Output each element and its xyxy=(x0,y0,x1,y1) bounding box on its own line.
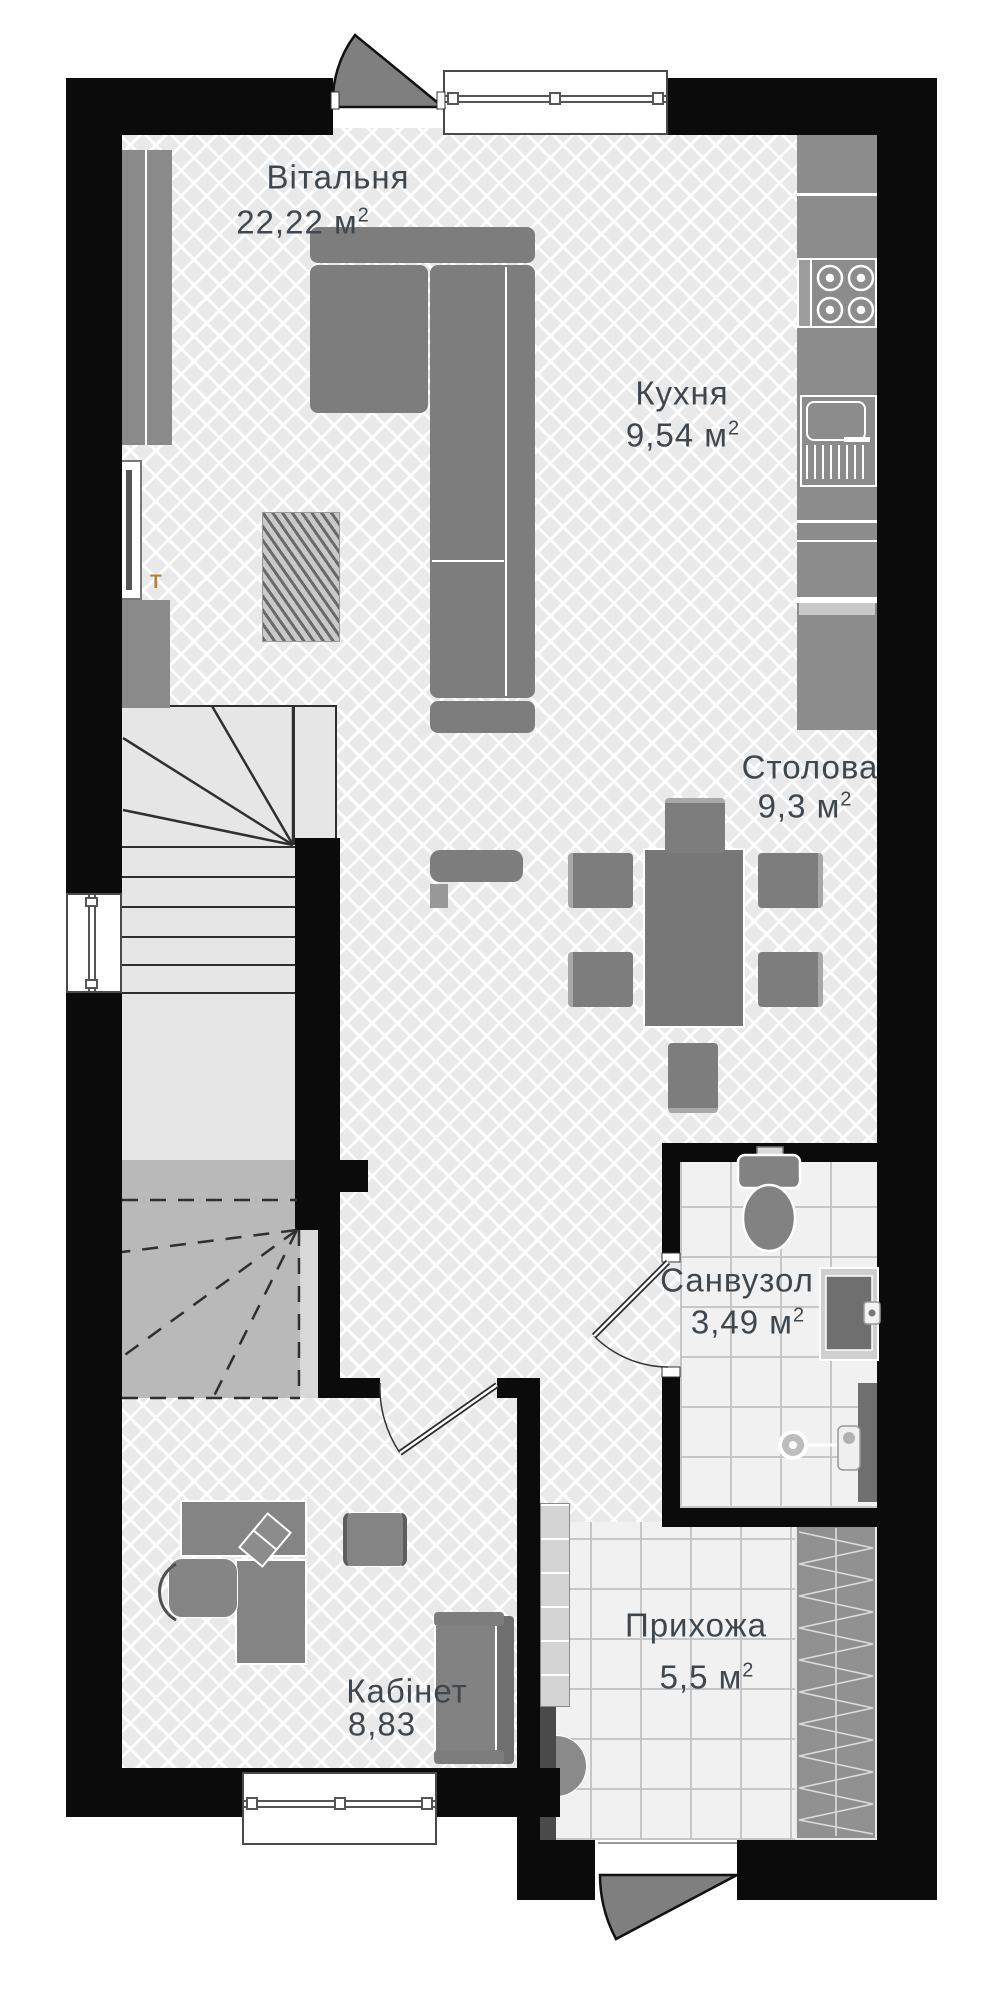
stair-tread-lines xyxy=(122,847,295,993)
stair-winder-lines xyxy=(123,706,293,845)
desk-chair-back xyxy=(159,1564,176,1620)
plan-linework xyxy=(0,0,999,1997)
office-door-icon xyxy=(380,1383,497,1453)
wardrobe-hatch xyxy=(799,1528,873,1836)
toilet-icon xyxy=(738,1147,800,1251)
room-label-bathroom-name: Санвузол xyxy=(660,1264,814,1297)
washbasin-icon xyxy=(820,1268,880,1360)
room-label-office-name: Кабінет xyxy=(346,1675,467,1708)
room-label-kitchen-name: Кухня xyxy=(635,377,728,410)
room-label-hallway-area: 5,5 м2 xyxy=(660,1661,755,1694)
room-label-dining-name: Столова xyxy=(742,751,879,784)
room-label-bathroom-area: 3,49 м2 xyxy=(691,1306,805,1339)
room-label-hallway-name: Прихожа xyxy=(625,1609,767,1642)
stove-burners xyxy=(818,266,873,322)
room-label-living-area: 22,22 м2 xyxy=(236,206,370,239)
floor-plan: T xyxy=(0,0,999,1997)
shower-drain-icon xyxy=(780,1383,877,1502)
room-label-living-name: Вітальня xyxy=(267,161,410,194)
room-label-office-area: 8,83 xyxy=(348,1708,416,1741)
room-label-kitchen-area: 9,54 м2 xyxy=(626,419,740,452)
entrance-door-icon xyxy=(598,1843,737,1939)
stair-dashed-lines xyxy=(122,1200,300,1398)
terrace-door-icon xyxy=(331,35,445,109)
room-label-dining-area: 9,3 м2 xyxy=(758,790,853,823)
laptop-icon xyxy=(239,1514,290,1567)
